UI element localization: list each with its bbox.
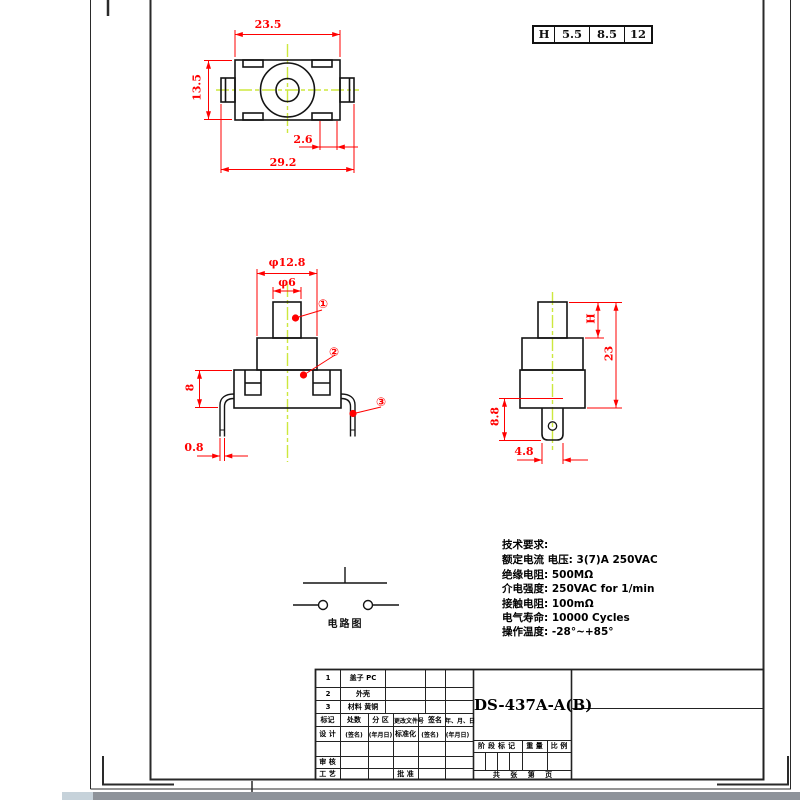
scrollbar-thumb[interactable]	[62, 792, 93, 800]
dim-top-notch-offset: 2.6	[285, 133, 321, 146]
revision-header-cell: 分 区	[368, 716, 393, 725]
top-view-centerlines	[216, 44, 359, 136]
technical-requirements: 技术要求: 额定电流 电压: 3(7)A 250VAC 绝缘电阻: 500MΩ …	[502, 538, 658, 640]
dim-side-terminal-width: 4.8	[506, 445, 542, 458]
revision-header-cell: 年、月、日	[445, 717, 473, 726]
tech-title: 技术要求:	[502, 538, 658, 552]
bom-row-no: 3	[316, 703, 340, 712]
dim-front-stem-dia: φ6	[267, 276, 307, 289]
h-table-header: H	[534, 27, 554, 42]
circuit-diagram-symbol	[293, 567, 399, 610]
revision-header-cell: 处数	[340, 716, 368, 725]
dim-front-cap-dia: φ12.8	[257, 256, 317, 269]
sheet-count-footer: 共 张 第 页	[474, 771, 571, 780]
horizontal-scrollbar[interactable]	[62, 792, 800, 800]
tech-line: 操作温度: -28°~+85°	[502, 625, 658, 639]
callout-2-label: ②	[329, 346, 339, 359]
sign-row-cell: (签名)	[340, 731, 368, 740]
tech-line: 绝缘电阻: 500MΩ	[502, 568, 658, 582]
bom-row-no: 2	[316, 690, 340, 699]
drawing-geometry	[0, 0, 800, 800]
dim-front-leg-thickness: 0.8	[176, 441, 212, 454]
dim-side-total-height: 23	[603, 334, 616, 374]
stroke-height-table: H 5.5 8.5 12	[532, 25, 653, 44]
tech-line: 接触电阻: 100mΩ	[502, 597, 658, 611]
stage-mark-label: 阶段标记	[474, 742, 522, 751]
sign-row-cell: (签名)	[418, 731, 442, 740]
sign-row-cell: 标准化	[393, 730, 418, 739]
approve-label: 批 准	[393, 770, 418, 779]
bom-row-name: 材料 黄铜	[341, 703, 385, 712]
tech-line: 额定电流 电压: 3(7)A 250VAC	[502, 553, 658, 567]
bom-row-no: 1	[316, 674, 340, 683]
revision-header-cell: 标记	[315, 716, 340, 725]
tech-line: 介电强度: 250VAC for 1/min	[502, 582, 658, 596]
callout-3-label: ③	[376, 396, 386, 409]
drawing-sheet: H 5.5 8.5 12 23.5 13.5 2.6 29.2 φ12.8 φ6…	[0, 0, 800, 800]
callout-dot-3	[349, 410, 356, 417]
dim-top-body-width: 23.5	[243, 18, 293, 31]
scale-label: 比 例	[547, 742, 571, 751]
callout-dot-2	[300, 371, 307, 378]
h-table-value-3: 12	[624, 27, 651, 42]
part-number: DS-437A-A(B)	[474, 696, 571, 714]
weight-label: 重 量	[522, 742, 547, 751]
bom-row-name: 外壳	[341, 690, 385, 699]
dim-front-base-height: 8	[184, 373, 197, 403]
audit-label: 审 核	[315, 758, 340, 767]
circuit-diagram-label: 电路图	[315, 615, 376, 630]
revision-header-cell: 签名	[425, 716, 445, 725]
process-label: 工 艺	[315, 770, 340, 779]
h-table-value-1: 5.5	[554, 27, 589, 42]
revision-header-cell: 更改文件号	[393, 717, 425, 726]
callout-dot-1	[292, 314, 299, 321]
bom-row-name: 盖子 PC	[341, 674, 385, 683]
dim-side-cap-height: H	[585, 304, 598, 334]
dim-top-total-width: 29.2	[263, 156, 303, 169]
dim-side-terminal-length: 8.8	[489, 397, 502, 437]
dim-top-body-height: 13.5	[191, 68, 204, 108]
h-table-value-2: 8.5	[589, 27, 624, 42]
sign-row-cell: 设 计	[315, 730, 340, 739]
callout-1-label: ①	[318, 298, 328, 311]
sign-row-cell: (年月日)	[442, 731, 473, 740]
tech-line: 电气寿命: 10000 Cycles	[502, 611, 658, 625]
sign-row-cell: (年月日)	[368, 731, 393, 740]
